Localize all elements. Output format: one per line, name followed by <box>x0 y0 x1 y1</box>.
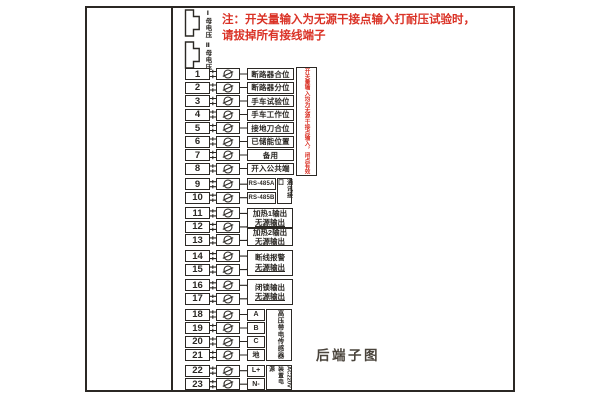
screw-terminal-icon <box>217 83 239 93</box>
screw-terminal-icon <box>217 123 239 133</box>
output-group-box: 闭锁输出 无源输出 <box>247 279 293 305</box>
screw-terminal-icon <box>217 222 239 232</box>
screw-terminal-icon <box>217 251 239 261</box>
screw-terminal-icon <box>217 193 239 203</box>
terminal-number-box: 2 <box>185 82 210 94</box>
screw-terminal-icon <box>217 164 239 174</box>
screw-terminal-box <box>216 349 240 361</box>
terminal-number-box: 10 <box>185 192 210 204</box>
terminal-label: 地 <box>247 349 265 361</box>
terminal-number-box: 1 <box>185 68 210 80</box>
terminal-number-box: 11 <box>185 207 210 219</box>
screw-terminal-box <box>216 136 240 148</box>
power-box: 装置电源 AC220V <box>266 365 292 391</box>
terminal-number-box: 16 <box>185 279 210 291</box>
screw-terminal-box <box>216 68 240 80</box>
screw-terminal-icon <box>217 179 239 189</box>
terminal-label: RS-485B <box>247 192 276 204</box>
screw-terminal-icon <box>217 280 239 290</box>
screw-terminal-box <box>216 109 240 121</box>
dio-note-box: 开关量输入均为无源干接点输入，闭点有效 <box>296 67 317 176</box>
terminal-number-box: 5 <box>185 122 210 134</box>
terminal-label: 备用 <box>247 149 294 161</box>
terminal-label: 断路器合位 <box>247 68 294 80</box>
terminal-label: L+ <box>247 365 265 377</box>
terminal-label: 开入公共端 <box>247 163 294 175</box>
terminal-number-box: 8 <box>185 163 210 175</box>
screw-terminal-icon <box>217 310 239 320</box>
terminal-number-box: 22 <box>185 365 210 377</box>
screw-terminal-box <box>216 365 240 377</box>
screw-terminal-icon <box>217 235 239 245</box>
screw-terminal-icon <box>217 110 239 120</box>
screw-terminal-box <box>216 149 240 161</box>
screw-terminal-box <box>216 178 240 190</box>
screw-terminal-icon <box>217 137 239 147</box>
screw-terminal-box <box>216 264 240 276</box>
terminal-label: 手车试验位 <box>247 95 294 107</box>
screw-terminal-icon <box>217 350 239 360</box>
screw-terminal-box <box>216 95 240 107</box>
output-group-sub: 无源输出 <box>255 237 285 246</box>
rear-terminal-diagram: Ⅰ母电压 Ⅱ母电压 注：开关量输入为无源干接点输入打耐压试验时， 请拔掉所有接线… <box>0 0 600 400</box>
screw-terminal-icon <box>217 69 239 79</box>
terminal-label: N- <box>247 378 265 390</box>
terminal-number-box: 7 <box>185 149 210 161</box>
screw-terminal-icon <box>217 366 239 376</box>
hv-sensor-box: 高压带电传感器 <box>266 309 292 362</box>
terminal-number-box: 6 <box>185 136 210 148</box>
terminal-number-box: 23 <box>185 378 210 390</box>
screw-terminal-icon <box>217 337 239 347</box>
screw-terminal-icon <box>217 294 239 304</box>
terminal-number-box: 15 <box>185 264 210 276</box>
screw-terminal-icon <box>217 265 239 275</box>
output-group-box: 加热2输出 无源输出 <box>247 228 293 246</box>
output-group-label: 闭锁输出 <box>255 283 285 292</box>
terminal-number-box: 20 <box>185 336 210 348</box>
screw-terminal-box <box>216 250 240 262</box>
terminal-label: RS-485A <box>247 178 276 190</box>
screw-terminal-box <box>216 293 240 305</box>
screw-terminal-icon <box>217 208 239 218</box>
screw-terminal-box <box>216 221 240 233</box>
terminal-label: C <box>247 336 265 348</box>
diagram-caption: 后端子图 <box>316 344 380 364</box>
terminal-number-box: 12 <box>185 221 210 233</box>
terminal-label: 手车工作位 <box>247 109 294 121</box>
output-group-label: 加热1输出 <box>253 209 287 218</box>
terminal-number-box: 3 <box>185 95 210 107</box>
power-rating-label: AC220V <box>286 366 292 388</box>
terminal-number-box: 4 <box>185 109 210 121</box>
terminal-number-box: 18 <box>185 309 210 321</box>
hv-sensor-label: 高压带电传感器 <box>274 310 284 359</box>
screw-terminal-box <box>216 322 240 334</box>
comm-port-label: 通讯接口 <box>276 179 294 203</box>
output-group-label: 加热2输出 <box>253 228 287 237</box>
comm-port-box: 通讯接口 <box>277 178 292 204</box>
output-group-label: 断线报警 <box>255 253 285 262</box>
terminal-number-box: 17 <box>185 293 210 305</box>
power-label: 装置电源 <box>267 366 285 390</box>
screw-terminal-box <box>216 82 240 94</box>
terminal-label: A <box>247 309 265 321</box>
terminal-number-box: 14 <box>185 250 210 262</box>
terminal-label: 断路器分位 <box>247 82 294 94</box>
terminal-number-box: 13 <box>185 234 210 246</box>
dio-note-text: 开关量输入均为无源干接点输入，闭点有效 <box>303 68 311 174</box>
screw-terminal-box <box>216 336 240 348</box>
terminal-label: 已储能位置 <box>247 136 294 148</box>
screw-terminal-icon <box>217 323 239 333</box>
screw-terminal-icon <box>217 96 239 106</box>
screw-terminal-box <box>216 309 240 321</box>
screw-terminal-icon <box>217 150 239 160</box>
wiring-lines <box>0 0 600 400</box>
output-group-sub: 无源输出 <box>255 218 285 227</box>
screw-terminal-box <box>216 234 240 246</box>
output-group-sub: 无源输出 <box>255 263 285 272</box>
terminal-number-box: 21 <box>185 349 210 361</box>
terminal-number-box: 9 <box>185 178 210 190</box>
screw-terminal-box <box>216 163 240 175</box>
output-group-box: 断线报警 无源输出 <box>247 250 293 276</box>
screw-terminal-box <box>216 279 240 291</box>
terminal-label: B <box>247 322 265 334</box>
screw-terminal-box <box>216 378 240 390</box>
terminal-label: 接地刀合位 <box>247 122 294 134</box>
screw-terminal-icon <box>217 379 239 389</box>
terminal-number-box: 19 <box>185 322 210 334</box>
output-group-box: 加热1输出 无源输出 <box>247 208 293 229</box>
output-group-sub: 无源输出 <box>255 292 285 301</box>
screw-terminal-box <box>216 192 240 204</box>
screw-terminal-box <box>216 207 240 219</box>
screw-terminal-box <box>216 122 240 134</box>
